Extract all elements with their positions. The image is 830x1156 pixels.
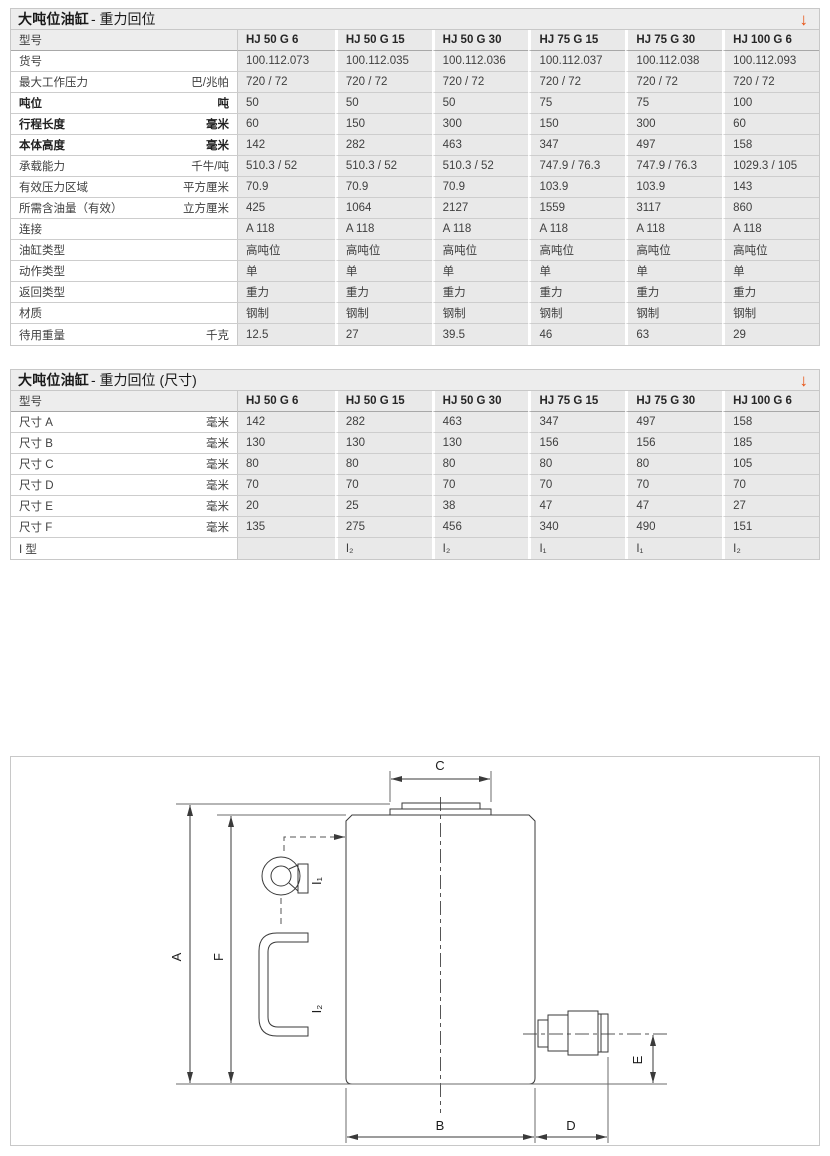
value-cell: 347 [528,412,625,433]
value-cell: 130 [238,433,335,454]
value-cell: 重力 [625,282,722,303]
cylinder-technical-drawing: C A F B D E I₁ I₂ [11,757,819,1145]
value-cell: 100.112.035 [335,51,432,72]
row-unit: 毫米 [206,435,229,451]
table-row: 动作类型单单单单单单 [11,261,819,282]
value-cell: 156 [625,433,722,454]
row-unit: 千牛/吨 [191,158,229,174]
row-label-cell: 待用重量千克 [11,324,238,345]
value-cell: 103.9 [528,177,625,198]
row-unit: 吨 [218,95,230,111]
value-cell: 47 [528,496,625,517]
row-unit: 毫米 [206,414,229,430]
row-label-cell: 连接 [11,219,238,240]
table-row: 本体高度毫米142282463347497158 [11,135,819,156]
value-cell: 80 [238,454,335,475]
row-label-cell: 尺寸 A毫米 [11,412,238,433]
value-cell: 340 [528,517,625,538]
column-header: HJ 75 G 15 [528,30,625,51]
row-label-cell: 材质 [11,303,238,324]
table-row: 尺寸 F毫米135275456340490151 [11,517,819,538]
value-cell: A 118 [432,219,529,240]
value-cell: 钢制 [432,303,529,324]
header-row: 型号HJ 50 G 6HJ 50 G 15HJ 50 G 30HJ 75 G 1… [11,30,819,51]
value-cell: 70 [335,475,432,496]
table-row: 最大工作压力巴/兆帕720 / 72720 / 72720 / 72720 / … [11,72,819,93]
eyelet-leader-line [284,837,345,851]
value-cell: 130 [335,433,432,454]
value-cell: I₁ [625,538,722,559]
value-cell: 钢制 [528,303,625,324]
value-cell: 单 [238,261,335,282]
row-label-cell: 尺寸 B毫米 [11,433,238,454]
value-cell: 463 [432,135,529,156]
value-cell: 70.9 [238,177,335,198]
value-cell: 80 [528,454,625,475]
value-cell: 重力 [722,282,819,303]
coupler-cap [598,1014,608,1052]
row-label-cell: 动作类型 [11,261,238,282]
value-cell: 143 [722,177,819,198]
specs-title-bar: 大吨位油缸 - 重力回位 ↓ [11,9,819,30]
value-cell: 75 [625,93,722,114]
value-cell: 70.9 [432,177,529,198]
value-cell: 100.112.038 [625,51,722,72]
panel-title: 大吨位油缸 [18,370,89,390]
value-cell: 747.9 / 76.3 [625,156,722,177]
value-cell: 27 [335,324,432,345]
value-cell: A 118 [528,219,625,240]
carrying-handle [259,933,308,1036]
value-cell: 156 [528,433,625,454]
value-cell: 142 [238,135,335,156]
table-row: 尺寸 C毫米8080808080105 [11,454,819,475]
table-row: 尺寸 A毫米142282463347497158 [11,412,819,433]
value-cell: 27 [722,496,819,517]
value-cell: 高吨位 [528,240,625,261]
row-label: 吨位 [19,95,42,111]
row-label-cell: 货号 [11,51,238,72]
value-cell: 高吨位 [335,240,432,261]
lifting-eye-outer [262,857,300,895]
row-unit: 毫米 [206,498,229,514]
lifting-eye-neck-top [289,865,298,869]
value-cell: 3117 [625,198,722,219]
value-cell: 490 [625,517,722,538]
value-cell: 497 [625,412,722,433]
column-header: HJ 75 G 30 [625,391,722,412]
value-cell: 钢制 [625,303,722,324]
row-label: I 型 [19,541,37,557]
value-cell: 158 [722,135,819,156]
value-cell: 103.9 [625,177,722,198]
column-header-model: 型号 [11,30,238,51]
row-label: 有效压力区域 [19,179,88,195]
table-row: 货号100.112.073100.112.035100.112.036100.1… [11,51,819,72]
dimensions-panel: 大吨位油缸 - 重力回位 (尺寸) ↓ 型号HJ 50 G 6HJ 50 G 1… [10,369,820,560]
row-label-cell: 返回类型 [11,282,238,303]
value-cell: 75 [528,93,625,114]
value-cell: 100.112.036 [432,51,529,72]
value-cell: 47 [625,496,722,517]
row-label: 货号 [19,53,42,69]
value-cell: A 118 [722,219,819,240]
value-cell: 1064 [335,198,432,219]
value-cell: 747.9 / 76.3 [528,156,625,177]
table-row: 行程长度毫米6015030015030060 [11,114,819,135]
value-cell: 510.3 / 52 [432,156,529,177]
value-cell: 单 [528,261,625,282]
table-row: 油缸类型高吨位高吨位高吨位高吨位高吨位高吨位 [11,240,819,261]
value-cell: I₁ [528,538,625,559]
dimensions-table: 型号HJ 50 G 6HJ 50 G 15HJ 50 G 30HJ 75 G 1… [11,391,819,559]
column-header: HJ 50 G 15 [335,391,432,412]
column-header: HJ 100 G 6 [722,391,819,412]
value-cell: 2127 [432,198,529,219]
table-row: 尺寸 E毫米202538474727 [11,496,819,517]
row-label: 连接 [19,221,42,237]
row-unit: 毫米 [206,519,229,535]
value-cell: 100.112.037 [528,51,625,72]
table-row: 所需含油量（有效）立方厘米4251064212715593117860 [11,198,819,219]
value-cell: 720 / 72 [335,72,432,93]
value-cell: 50 [335,93,432,114]
dim-label-a: A [169,952,184,961]
column-header: HJ 50 G 30 [432,30,529,51]
value-cell: 80 [432,454,529,475]
row-label-cell: 尺寸 C毫米 [11,454,238,475]
value-cell: 重力 [238,282,335,303]
value-cell: 720 / 72 [528,72,625,93]
row-label: 尺寸 C [19,456,54,472]
value-cell: 105 [722,454,819,475]
column-header: HJ 100 G 6 [722,30,819,51]
value-cell: 300 [432,114,529,135]
row-label-cell: 承载能力千牛/吨 [11,156,238,177]
row-label: 材质 [19,305,42,321]
value-cell: A 118 [238,219,335,240]
cylinder-drawing-panel: C A F B D E I₁ I₂ [10,756,820,1146]
download-arrow-icon[interactable]: ↓ [796,11,813,28]
row-unit: 毫米 [206,137,229,153]
dim-label-b: B [436,1118,445,1133]
table-row: 吨位吨5050507575100 [11,93,819,114]
row-label-cell: 油缸类型 [11,240,238,261]
row-label-cell: 行程长度毫米 [11,114,238,135]
row-unit: 立方厘米 [183,200,229,216]
row-label-cell: I 型 [11,538,238,559]
value-cell: 150 [335,114,432,135]
panel-subtitle: - 重力回位 [91,9,156,29]
panel-subtitle: - 重力回位 (尺寸) [91,370,197,390]
value-cell: 重力 [432,282,529,303]
value-cell: 单 [335,261,432,282]
value-cell: 70.9 [335,177,432,198]
row-label: 承载能力 [19,158,65,174]
header-row: 型号HJ 50 G 6HJ 50 G 15HJ 50 G 30HJ 75 G 1… [11,391,819,412]
row-label-cell: 本体高度毫米 [11,135,238,156]
value-cell: 80 [335,454,432,475]
value-cell: 151 [722,517,819,538]
value-cell: A 118 [335,219,432,240]
value-cell: 60 [722,114,819,135]
value-cell: 钢制 [335,303,432,324]
value-cell: 497 [625,135,722,156]
value-cell [238,538,335,559]
value-cell: 456 [432,517,529,538]
panel-title: 大吨位油缸 [18,9,89,29]
value-cell: 39.5 [432,324,529,345]
value-cell: 1029.3 / 105 [722,156,819,177]
value-cell: 38 [432,496,529,517]
lifting-eye-inner [271,866,291,886]
table-row: 连接A 118A 118A 118A 118A 118A 118 [11,219,819,240]
value-cell: 150 [528,114,625,135]
column-header: HJ 75 G 15 [528,391,625,412]
column-header: HJ 50 G 6 [238,30,335,51]
value-cell: 70 [528,475,625,496]
specs-panel: 大吨位油缸 - 重力回位 ↓ 型号HJ 50 G 6HJ 50 G 15HJ 5… [10,8,820,346]
row-unit: 毫米 [206,456,229,472]
value-cell: 60 [238,114,335,135]
value-cell: 720 / 72 [722,72,819,93]
table-row: 尺寸 D毫米707070707070 [11,475,819,496]
value-cell: 347 [528,135,625,156]
value-cell: 463 [432,412,529,433]
value-cell: 70 [625,475,722,496]
row-label: 油缸类型 [19,242,65,258]
value-cell: 860 [722,198,819,219]
row-label: 所需含油量（有效） [19,200,123,216]
value-cell: 720 / 72 [625,72,722,93]
dim-label-c: C [435,758,444,773]
table-row: 尺寸 B毫米130130130156156185 [11,433,819,454]
value-cell: I₂ [722,538,819,559]
table-row: 承载能力千牛/吨510.3 / 52510.3 / 52510.3 / 5274… [11,156,819,177]
row-label: 最大工作压力 [19,74,88,90]
row-label-cell: 尺寸 D毫米 [11,475,238,496]
row-label-cell: 吨位吨 [11,93,238,114]
value-cell: 25 [335,496,432,517]
row-label-cell: 尺寸 E毫米 [11,496,238,517]
value-cell: 158 [722,412,819,433]
value-cell: 275 [335,517,432,538]
row-label: 待用重量 [19,327,65,343]
value-cell: 510.3 / 52 [335,156,432,177]
value-cell: I₂ [432,538,529,559]
value-cell: 300 [625,114,722,135]
row-label: 尺寸 A [19,414,53,430]
row-label: 行程长度 [19,116,65,132]
value-cell: 50 [432,93,529,114]
value-cell: 100 [722,93,819,114]
row-label: 尺寸 F [19,519,52,535]
row-label: 返回类型 [19,284,65,300]
value-cell: 单 [432,261,529,282]
value-cell: 单 [625,261,722,282]
download-arrow-icon[interactable]: ↓ [796,372,813,389]
value-cell: 185 [722,433,819,454]
coupler-middle [548,1015,568,1051]
value-cell: 135 [238,517,335,538]
table-row: 有效压力区域平方厘米70.970.970.9103.9103.9143 [11,177,819,198]
column-header-model: 型号 [11,391,238,412]
row-label-cell: 有效压力区域平方厘米 [11,177,238,198]
dim-label-e: E [630,1055,645,1064]
value-cell: I₂ [335,538,432,559]
part-label-i1: I₁ [309,876,324,885]
row-label: 尺寸 D [19,477,54,493]
row-unit: 毫米 [206,116,229,132]
value-cell: 1559 [528,198,625,219]
value-cell: 50 [238,93,335,114]
value-cell: 100.112.073 [238,51,335,72]
value-cell: 100.112.093 [722,51,819,72]
row-unit: 千克 [206,327,229,343]
dim-label-f: F [211,953,226,961]
value-cell: 重力 [528,282,625,303]
value-cell: 282 [335,412,432,433]
row-unit: 巴/兆帕 [191,74,229,90]
column-header: HJ 50 G 30 [432,391,529,412]
value-cell: 20 [238,496,335,517]
row-label: 尺寸 E [19,498,53,514]
value-cell: 80 [625,454,722,475]
value-cell: 130 [432,433,529,454]
value-cell: 高吨位 [238,240,335,261]
value-cell: 钢制 [238,303,335,324]
table-row: 材质钢制钢制钢制钢制钢制钢制 [11,303,819,324]
value-cell: 70 [238,475,335,496]
value-cell: 12.5 [238,324,335,345]
value-cell: 70 [432,475,529,496]
value-cell: 高吨位 [432,240,529,261]
value-cell: 70 [722,475,819,496]
row-unit: 毫米 [206,477,229,493]
value-cell: 282 [335,135,432,156]
value-cell: 142 [238,412,335,433]
dim-label-d: D [566,1118,575,1133]
column-header: HJ 50 G 15 [335,30,432,51]
value-cell: 29 [722,324,819,345]
value-cell: 720 / 72 [432,72,529,93]
value-cell: 510.3 / 52 [238,156,335,177]
value-cell: 高吨位 [722,240,819,261]
table-row: 返回类型重力重力重力重力重力重力 [11,282,819,303]
value-cell: 46 [528,324,625,345]
row-unit: 平方厘米 [183,179,229,195]
value-cell: 钢制 [722,303,819,324]
row-label-cell: 最大工作压力巴/兆帕 [11,72,238,93]
row-label: 动作类型 [19,263,65,279]
column-header: HJ 75 G 30 [625,30,722,51]
table-row: 待用重量千克12.52739.5466329 [11,324,819,345]
value-cell: 63 [625,324,722,345]
column-header: HJ 50 G 6 [238,391,335,412]
value-cell: 重力 [335,282,432,303]
row-label-cell: 所需含油量（有效）立方厘米 [11,198,238,219]
row-label-cell: 尺寸 F毫米 [11,517,238,538]
value-cell: 高吨位 [625,240,722,261]
coupler-body [568,1011,598,1055]
value-cell: 425 [238,198,335,219]
table-row: I 型I₂I₂I₁I₁I₂ [11,538,819,559]
row-label: 本体高度 [19,137,65,153]
dimensions-title-bar: 大吨位油缸 - 重力回位 (尺寸) ↓ [11,370,819,391]
value-cell: A 118 [625,219,722,240]
row-label: 尺寸 B [19,435,53,451]
part-label-i2: I₂ [309,1005,324,1014]
value-cell: 720 / 72 [238,72,335,93]
value-cell: 单 [722,261,819,282]
specs-table: 型号HJ 50 G 6HJ 50 G 15HJ 50 G 30HJ 75 G 1… [11,30,819,345]
